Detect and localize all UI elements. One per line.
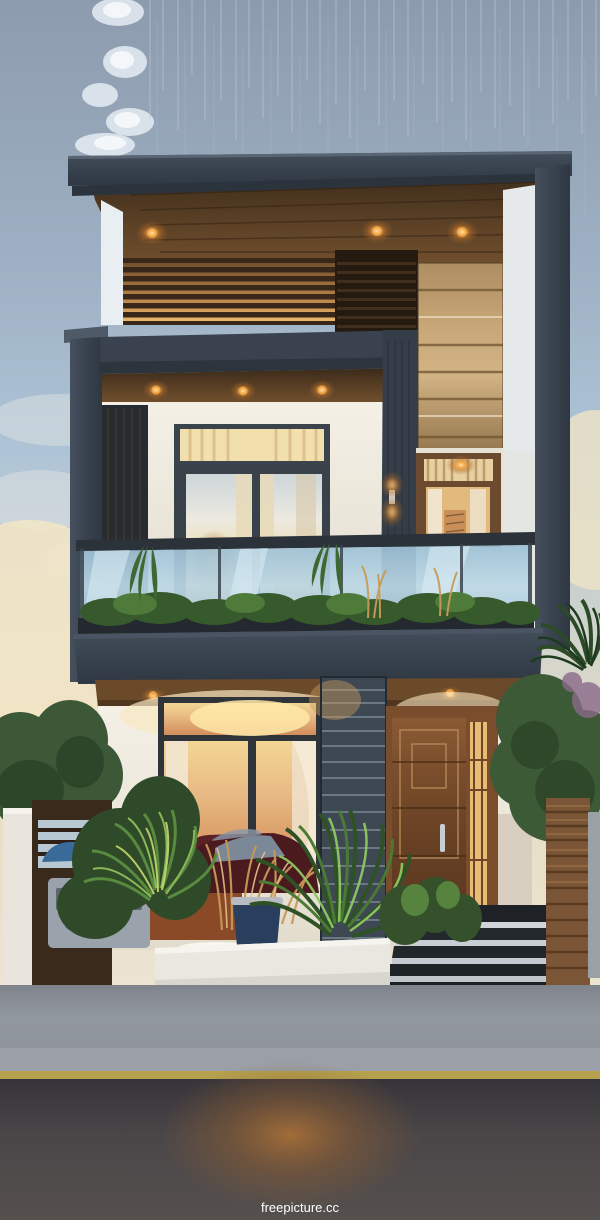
svg-text:freepicture.cc: freepicture.cc — [261, 1200, 340, 1215]
